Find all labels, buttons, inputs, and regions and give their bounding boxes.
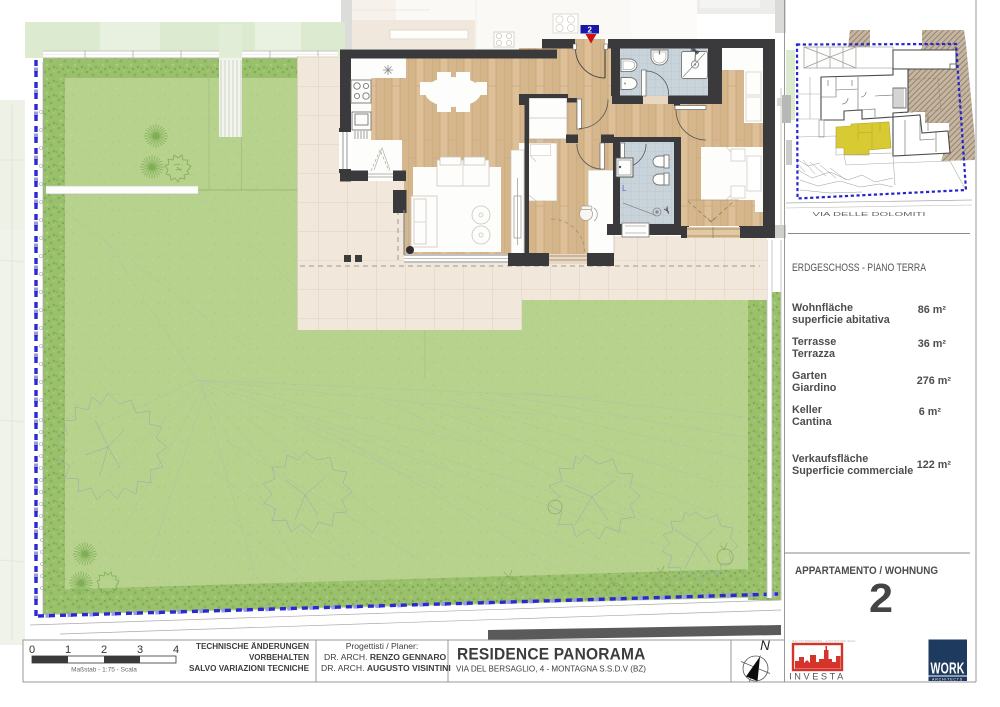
svg-text:WORK: WORK <box>931 659 965 677</box>
svg-text:3: 3 <box>137 644 143 656</box>
svg-text:Wohnfläche: Wohnfläche <box>792 302 853 314</box>
svg-text:Garten: Garten <box>792 370 827 382</box>
svg-text:SALVO VARIAZIONI TECNICHE: SALVO VARIAZIONI TECNICHE <box>189 663 309 673</box>
svg-text:ERDGESCHOSS - PIANO TERRA: ERDGESCHOSS - PIANO TERRA <box>792 262 927 274</box>
svg-text:36 m²: 36 m² <box>918 338 947 350</box>
svg-text:4: 4 <box>173 644 179 656</box>
svg-text:BAUUNTERNEHMEN - COSTRUZIONI E: BAUUNTERNEHMEN - COSTRUZIONI EDILI <box>793 639 856 643</box>
svg-text:TECHNISCHE ÄNDERUNGEN: TECHNISCHE ÄNDERUNGEN <box>196 641 309 651</box>
svg-text:Giardino: Giardino <box>792 382 837 394</box>
svg-text:122 m²: 122 m² <box>917 459 952 471</box>
svg-text:Verkaufsfläche: Verkaufsfläche <box>792 453 868 465</box>
svg-text:L: L <box>622 184 627 193</box>
svg-text:2: 2 <box>101 644 107 656</box>
svg-text:DR. ARCH. RENZO GENNARO: DR. ARCH. RENZO GENNARO <box>324 652 447 662</box>
svg-text:VORBEHALTEN: VORBEHALTEN <box>249 652 309 662</box>
svg-text:DR. ARCH. AUGUSTO VISINTINI: DR. ARCH. AUGUSTO VISINTINI <box>321 663 451 673</box>
svg-text:Superficie commerciale: Superficie commerciale <box>792 465 913 477</box>
svg-text:0: 0 <box>29 644 35 656</box>
svg-text:RESIDENCE PANORAMA: RESIDENCE PANORAMA <box>457 645 646 664</box>
svg-text:2: 2 <box>587 25 592 34</box>
svg-text:Cantina: Cantina <box>792 416 833 428</box>
svg-text:Terrasse: Terrasse <box>792 336 836 348</box>
svg-text:276 m²: 276 m² <box>917 375 952 387</box>
svg-text:INVESTA: INVESTA <box>789 672 846 682</box>
svg-text:Keller: Keller <box>792 404 823 416</box>
svg-text:superficie abitativa: superficie abitativa <box>792 314 891 326</box>
svg-text:N: N <box>760 638 770 653</box>
svg-text:Progettisti / Planer:: Progettisti / Planer: <box>346 641 419 651</box>
svg-text:Maßstab - 1:75 - Scala: Maßstab - 1:75 - Scala <box>71 667 137 674</box>
svg-text:VIA DEL BERSAGLIO, 4 - MONTAGN: VIA DEL BERSAGLIO, 4 - MONTAGNA S.S.D.V … <box>456 664 646 674</box>
svg-text:6 m²: 6 m² <box>919 406 942 418</box>
svg-text:2: 2 <box>869 575 893 621</box>
svg-text:ARCHITECTS: ARCHITECTS <box>932 677 963 681</box>
svg-text:VIA DELLE DOLOMITI: VIA DELLE DOLOMITI <box>813 212 927 218</box>
svg-text:86 m²: 86 m² <box>918 304 947 316</box>
svg-text:APPARTAMENTO / WOHNUNG: APPARTAMENTO / WOHNUNG <box>795 565 938 577</box>
svg-text:1: 1 <box>65 644 71 656</box>
svg-text:Terrazza: Terrazza <box>792 348 836 360</box>
